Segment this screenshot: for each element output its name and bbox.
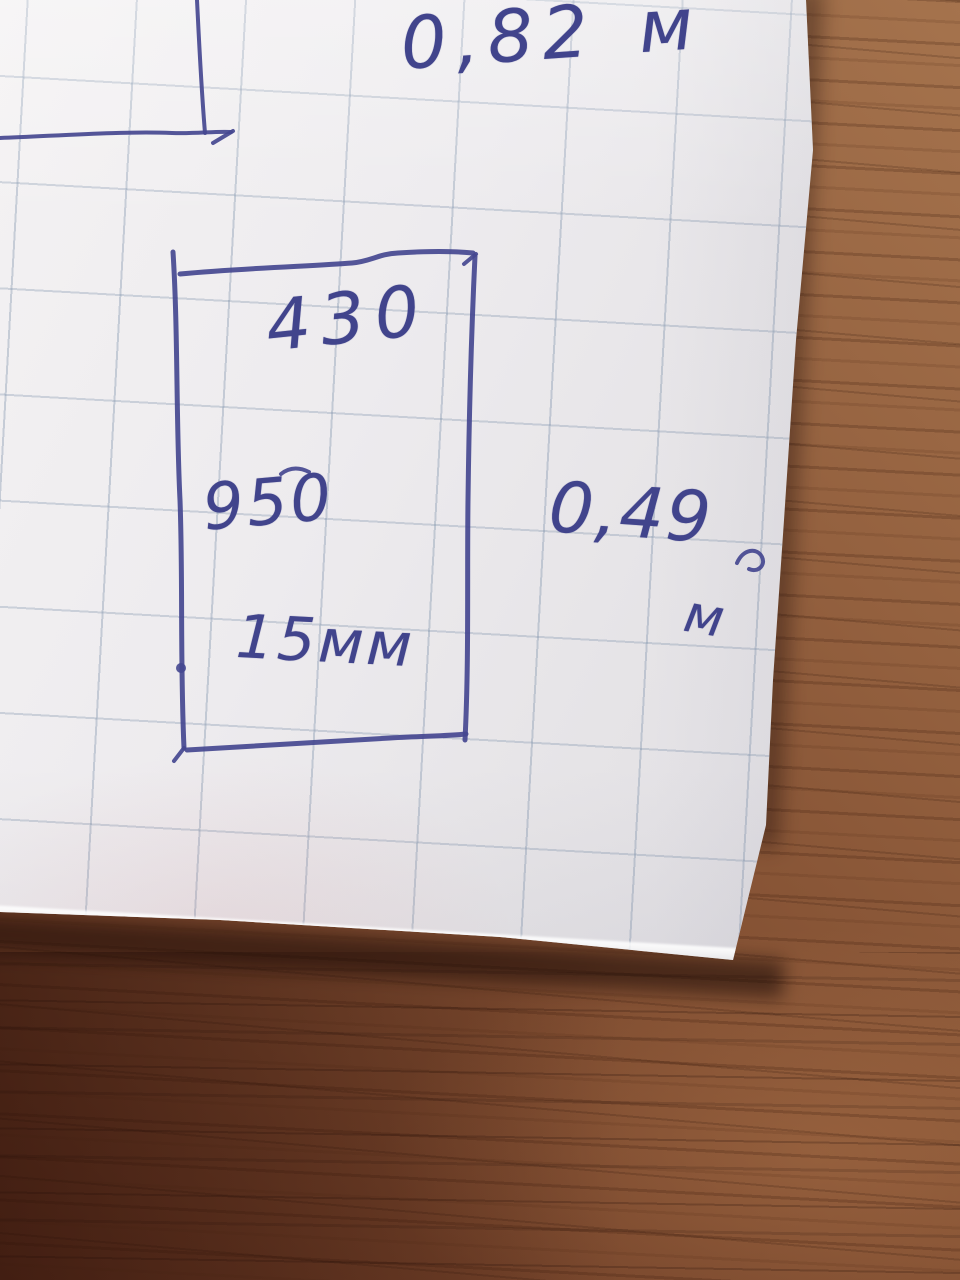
photo-of-handwritten-measurement-note: 0,82 м 430 950 15мм 0,49 м	[0, 0, 960, 1280]
wood-grain-dark-band	[0, 952, 960, 1280]
measurement-box-width: 430	[262, 269, 433, 368]
measurement-box-thickness: 15мм	[234, 602, 416, 681]
measurement-right-height: 0,49	[546, 466, 715, 559]
measurement-box-height: 950	[200, 461, 337, 546]
